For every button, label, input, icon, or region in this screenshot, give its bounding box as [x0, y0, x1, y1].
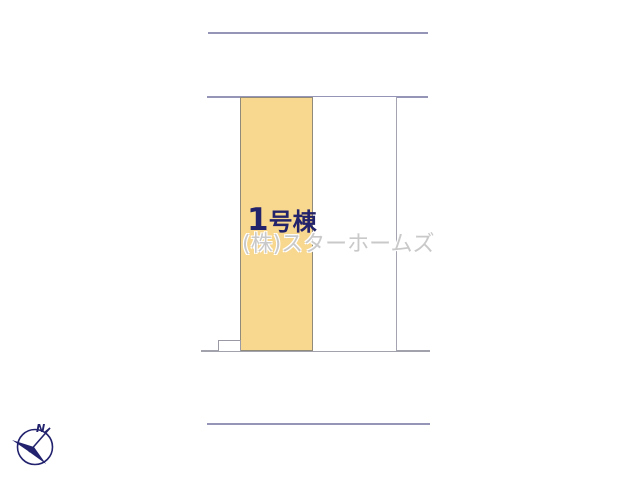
company-watermark: (株)スターホームズ	[242, 226, 402, 258]
lot-boundary-notch	[218, 340, 241, 351]
lot-2-plot	[313, 97, 396, 351]
road-line-top	[208, 32, 428, 34]
road-line-bottom	[207, 423, 430, 425]
north-compass-icon: N	[8, 418, 63, 473]
compass-north-label: N	[36, 422, 45, 435]
site-plan: 1号棟 (株)スターホームズ N	[0, 0, 640, 480]
